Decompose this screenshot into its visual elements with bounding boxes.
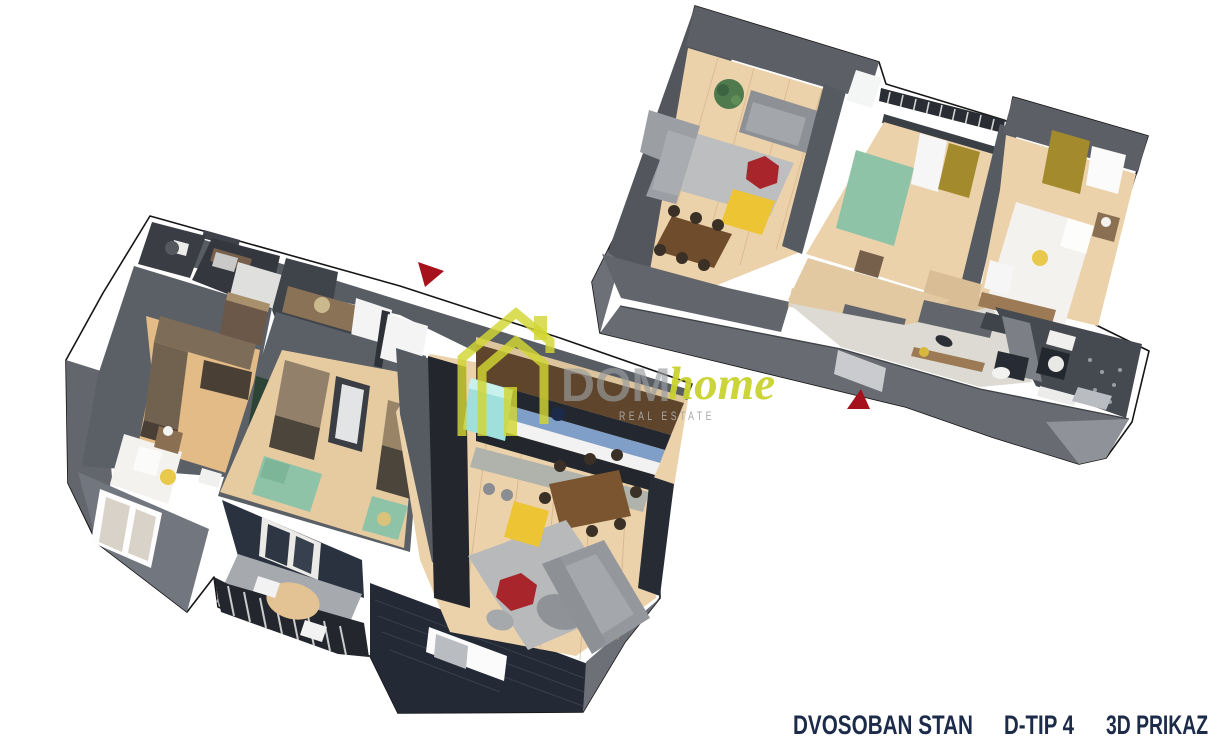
svg-text:home: home	[668, 358, 775, 410]
svg-text:D-TIP 4: D-TIP 4	[1004, 710, 1074, 740]
svg-text:DOM: DOM	[561, 358, 671, 411]
svg-text:3D PRIKAZ: 3D PRIKAZ	[1106, 710, 1208, 740]
svg-text:DVOSOBAN STAN: DVOSOBAN STAN	[793, 710, 973, 740]
svg-text:REAL ESTATE: REAL ESTATE	[619, 411, 715, 423]
